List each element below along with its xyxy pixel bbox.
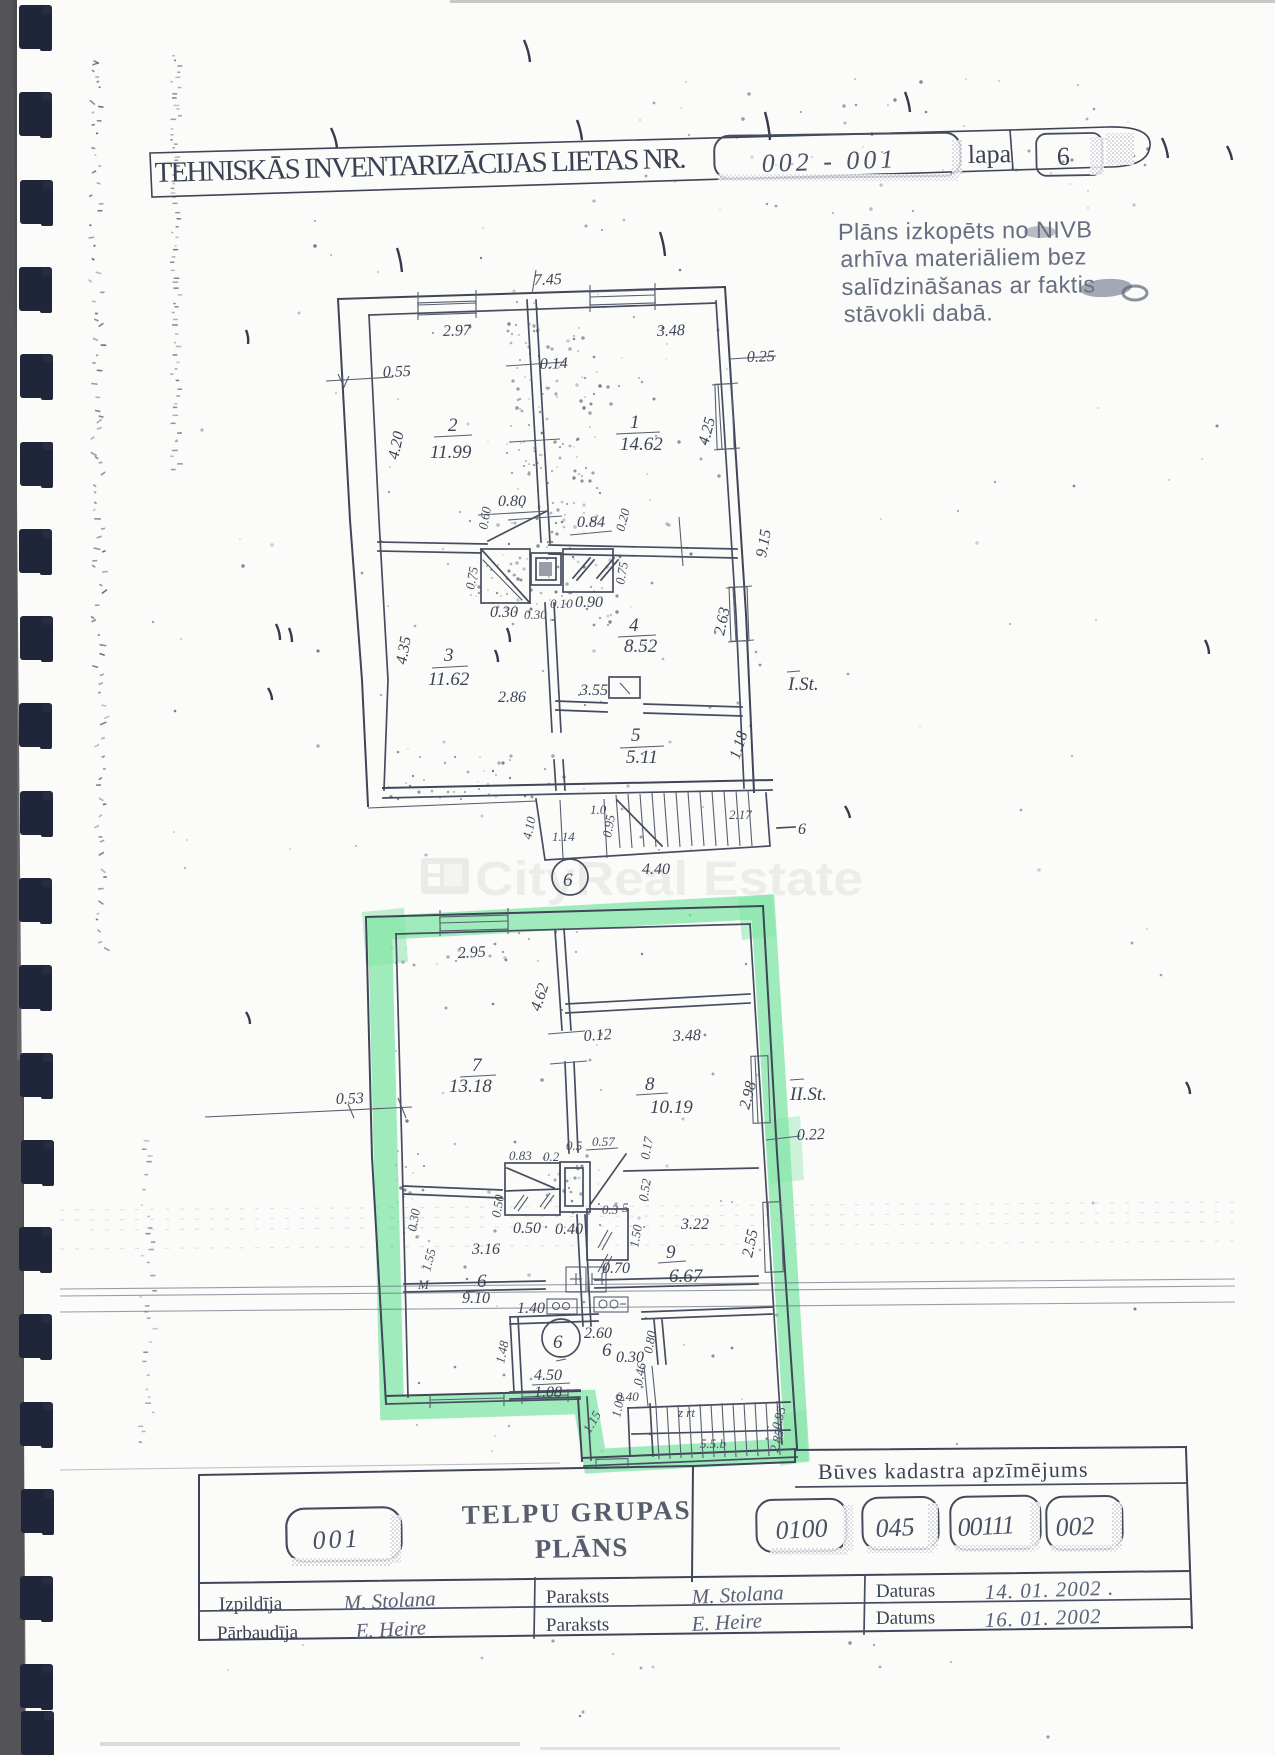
svg-text:M. Stolana: M. Stolana: [690, 1580, 784, 1609]
svg-text:Datums: Datums: [876, 1607, 935, 1629]
svg-text:11.62: 11.62: [428, 669, 470, 690]
svg-text:arhīva materiāliem bez: arhīva materiāliem bez: [840, 243, 1087, 272]
svg-text:8: 8: [645, 1074, 655, 1095]
svg-text:I.St.: I.St.: [787, 674, 819, 695]
svg-text:0.83: 0.83: [509, 1148, 532, 1163]
svg-text:00111: 00111: [957, 1510, 1015, 1542]
svg-text:1.14: 1.14: [552, 829, 575, 844]
svg-text:Būves kadastra apzīmējums: Būves kadastra apzīmējums: [818, 1457, 1089, 1484]
svg-text:2.97: 2.97: [443, 322, 473, 340]
svg-text:4.50: 4.50: [534, 1367, 562, 1384]
svg-text:0.90: 0.90: [575, 594, 603, 611]
svg-text:2: 2: [448, 415, 458, 436]
svg-text:3.22: 3.22: [680, 1216, 709, 1233]
svg-text:4: 4: [629, 615, 639, 636]
svg-text:M: M: [417, 1277, 430, 1292]
svg-text:6: 6: [477, 1271, 487, 1292]
svg-text:3.16: 3.16: [471, 1241, 500, 1258]
svg-text:0100: 0100: [775, 1513, 828, 1545]
svg-text:7: 7: [472, 1055, 483, 1076]
svg-text:6: 6: [553, 1332, 563, 1353]
svg-text:045: 045: [875, 1512, 915, 1543]
svg-text:8.52: 8.52: [624, 636, 658, 657]
svg-text:0.80: 0.80: [498, 493, 526, 510]
svg-text:E. Heire: E. Heire: [354, 1615, 427, 1643]
svg-text:3.48: 3.48: [656, 322, 686, 340]
svg-text:0.57: 0.57: [592, 1134, 615, 1149]
svg-text:0.30: 0.30: [524, 607, 547, 622]
svg-text:5.11: 5.11: [626, 747, 658, 768]
svg-text:7.45: 7.45: [534, 271, 563, 289]
svg-text:M. Stolana: M. Stolana: [342, 1586, 436, 1615]
svg-text:4.40: 4.40: [642, 861, 670, 878]
svg-text:1: 1: [630, 412, 640, 433]
svg-text:6: 6: [563, 870, 573, 891]
svg-text:3.48: 3.48: [672, 1027, 702, 1045]
svg-text:002: 002: [1055, 1511, 1095, 1542]
svg-text:3: 3: [443, 645, 454, 666]
svg-text:9: 9: [666, 1242, 676, 1263]
svg-text:PLĀNS: PLĀNS: [534, 1532, 628, 1564]
svg-text:2.95: 2.95: [457, 944, 486, 962]
svg-text:5.5.b: 5.5.b: [700, 1436, 727, 1451]
svg-text:14.62: 14.62: [620, 434, 663, 455]
svg-text:0.84: 0.84: [577, 514, 605, 531]
svg-text:0.5: 0.5: [566, 1138, 583, 1153]
svg-text:stāvokli dabā.: stāvokli dabā.: [844, 299, 994, 327]
svg-text:0.70: 0.70: [602, 1260, 630, 1277]
svg-text:002 - 001: 002 - 001: [761, 144, 898, 178]
svg-text:0.14: 0.14: [540, 355, 569, 373]
svg-text:0.40: 0.40: [555, 1221, 583, 1238]
svg-text:3.55: 3.55: [579, 682, 608, 699]
svg-text:Paraksts: Paraksts: [546, 1586, 610, 1608]
svg-text:6: 6: [1057, 142, 1071, 171]
svg-text:0.10: 0.10: [550, 596, 573, 611]
svg-text:0.12: 0.12: [583, 1026, 612, 1045]
svg-text:TELPU GRUPAS: TELPU GRUPAS: [461, 1495, 691, 1530]
svg-text:001: 001: [312, 1524, 361, 1555]
svg-text:11.99: 11.99: [430, 442, 472, 463]
svg-text:Daturas: Daturas: [876, 1580, 935, 1602]
svg-text:E. Heire: E. Heire: [690, 1608, 763, 1636]
svg-text:0.22: 0.22: [797, 1126, 826, 1144]
svg-text:16. 01. 2002: 16. 01. 2002: [984, 1604, 1102, 1632]
svg-text:14. 01. 2002 .: 14. 01. 2002 .: [984, 1575, 1114, 1604]
svg-text:6: 6: [602, 1340, 612, 1361]
svg-text:Izpildīja: Izpildīja: [219, 1593, 283, 1615]
svg-text:2.17: 2.17: [729, 807, 752, 822]
svg-text:6: 6: [798, 821, 806, 838]
svg-text:5: 5: [631, 725, 641, 746]
svg-text:0.55: 0.55: [383, 363, 412, 381]
svg-text:II.St.: II.St.: [789, 1084, 827, 1105]
svg-text:Pārbaudīja: Pārbaudīja: [217, 1622, 299, 1644]
svg-text:5: 5: [622, 1200, 629, 1215]
svg-text:lapa: lapa: [968, 139, 1012, 169]
svg-text:Paraksts: Paraksts: [546, 1614, 610, 1636]
svg-text:0.53: 0.53: [336, 1090, 365, 1108]
svg-text:13.18: 13.18: [449, 1076, 492, 1097]
svg-text:0.50: 0.50: [513, 1220, 541, 1237]
svg-text:2.86: 2.86: [498, 689, 526, 706]
svg-text:1.08: 1.08: [534, 1384, 562, 1401]
svg-text:0.30: 0.30: [490, 604, 518, 621]
svg-text:10.19: 10.19: [650, 1097, 693, 1118]
svg-text:0.2: 0.2: [543, 1149, 560, 1164]
svg-text:salīdzināšanas ar faktis: salīdzināšanas ar faktis: [841, 271, 1095, 300]
svg-text:0.3: 0.3: [602, 1202, 619, 1217]
svg-text:z rt: z rt: [677, 1405, 695, 1420]
